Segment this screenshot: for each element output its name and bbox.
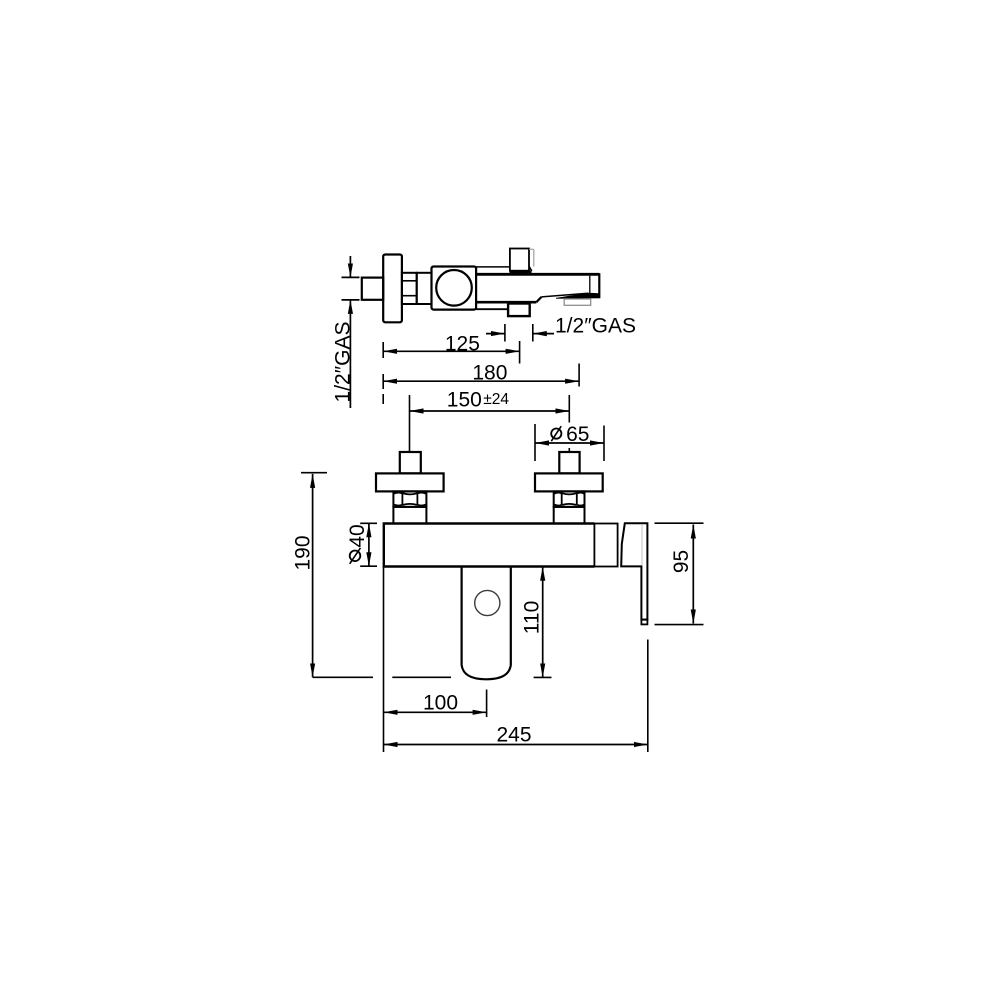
svg-text:100: 100 (423, 692, 458, 715)
svg-text:1/2″GAS: 1/2″GAS (332, 322, 355, 403)
svg-text:180: 180 (472, 362, 507, 385)
svg-text:245: 245 (496, 724, 531, 747)
svg-text:±24: ±24 (483, 391, 509, 408)
svg-text:65: 65 (566, 423, 589, 446)
svg-text:190: 190 (292, 535, 315, 570)
svg-text:110: 110 (521, 601, 544, 634)
svg-text:150: 150 (447, 389, 482, 412)
svg-text:40: 40 (346, 524, 369, 547)
svg-text:95: 95 (670, 550, 693, 573)
svg-text:125: 125 (445, 332, 480, 355)
svg-text:1/2″GAS: 1/2″GAS (555, 315, 636, 338)
